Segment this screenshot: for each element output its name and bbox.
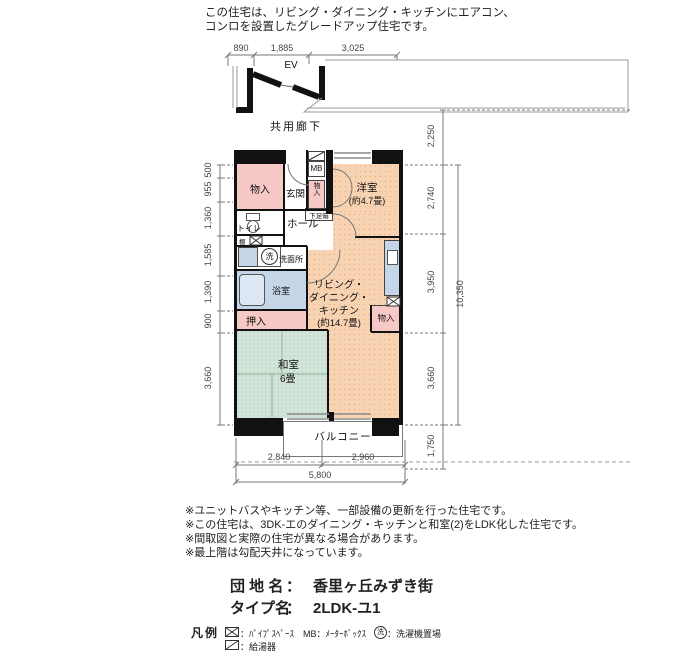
dim-bottom-total: 5,800 [300, 470, 340, 480]
note-3: ※間取図と実際の住宅が異なる場合があります。 [185, 532, 424, 547]
corridor-label: 共用廊下 [270, 118, 322, 134]
vanity-counter [238, 247, 258, 267]
washroom-label: 洗面所 [279, 254, 303, 265]
note-2: ※この住宅は、3DK-エのダイニング・キッチンと和室(2)をLDK化した住宅です… [185, 518, 583, 533]
estate-name-value: 香里ヶ丘みずき街 [313, 575, 433, 596]
legend-heater-text: ：給湯器 [240, 640, 276, 653]
storage-top-label: 物入 [236, 181, 284, 196]
legend-wash-place-text: ：洗濯機置場 [387, 627, 441, 640]
shelf-label: 棚 [239, 236, 246, 246]
storage-mid-label: 物入 [311, 182, 322, 196]
bath-label: 浴室 [272, 284, 290, 297]
estate-type-label: タイプ名 [230, 597, 290, 618]
dim-top-0: 890 [229, 43, 253, 53]
dim-right-total: 10,350 [455, 274, 465, 314]
header-note-line2: コンロを設置したグレードアップ住宅です。 [205, 18, 434, 34]
storage-right-label: 物入 [371, 312, 401, 324]
dim-right-0: 2,250 [426, 116, 436, 156]
water-heater-icon [225, 640, 239, 650]
dim-bottom-0: 2,840 [259, 452, 299, 462]
dim-left-2: 1,360 [203, 198, 213, 238]
dim-right-3: 3,660 [426, 358, 436, 398]
ev-door-line [281, 85, 293, 87]
western-room-size: (約4.7畳) [333, 194, 401, 207]
estate-type-value: 2LDK-ユ1 [313, 597, 381, 618]
kitchen-sink [387, 250, 398, 265]
estate-name-label: 団 地 名 [230, 575, 283, 596]
mb-label: MB [308, 164, 325, 173]
note-1: ※ユニットバスやキッチン等、一部設備の更新を行った住宅です。 [185, 504, 512, 519]
ev-label: EV [276, 60, 306, 71]
dim-left-5: 900 [203, 301, 213, 341]
dim-left-6: 3,660 [203, 358, 213, 398]
dim-top-1: 1,885 [262, 43, 302, 53]
entrance-label: 玄関 [283, 186, 308, 200]
ev-walls [236, 66, 322, 110]
ldk-label-line4: (約14.7畳) [303, 315, 375, 329]
note-4: ※最上階は勾配天井になっています。 [185, 546, 369, 561]
closet-label: 押入 [246, 313, 266, 328]
legend-title: 凡例 [191, 624, 219, 641]
legend-pipe-space-text: ：ﾊﾟｲﾌﾟｽﾍﾟｰｽ [240, 627, 294, 640]
kitchen-counter [384, 240, 401, 296]
water-heater-box [308, 151, 325, 161]
western-room-name: 洋室 [333, 180, 401, 195]
balcony-label: バルコニー [283, 429, 403, 444]
dim-bottom-1: 2,960 [343, 452, 383, 462]
hall-label: ホール [287, 216, 319, 231]
washing-machine-symbol: 洗 [261, 248, 278, 265]
legend-meter-box-text: MB：ﾒｰﾀｰﾎﾞｯｸｽ [303, 627, 366, 640]
dim-right-2: 3,950 [426, 262, 436, 302]
dim-top-2: 3,025 [333, 43, 373, 53]
japanese-room-size: 6畳 [280, 370, 296, 385]
bathtub [239, 274, 265, 306]
estate-type-sep: ： [286, 597, 301, 618]
washing-place-icon: 洗 [374, 626, 387, 639]
pipe-space-icon [225, 627, 239, 637]
estate-name-sep: ： [286, 575, 301, 596]
toilet-label: トイレ [237, 223, 261, 234]
dim-right-4: 1,750 [426, 426, 436, 466]
dim-right-1: 2,740 [426, 178, 436, 218]
dim-left-3: 1,585 [203, 235, 213, 275]
